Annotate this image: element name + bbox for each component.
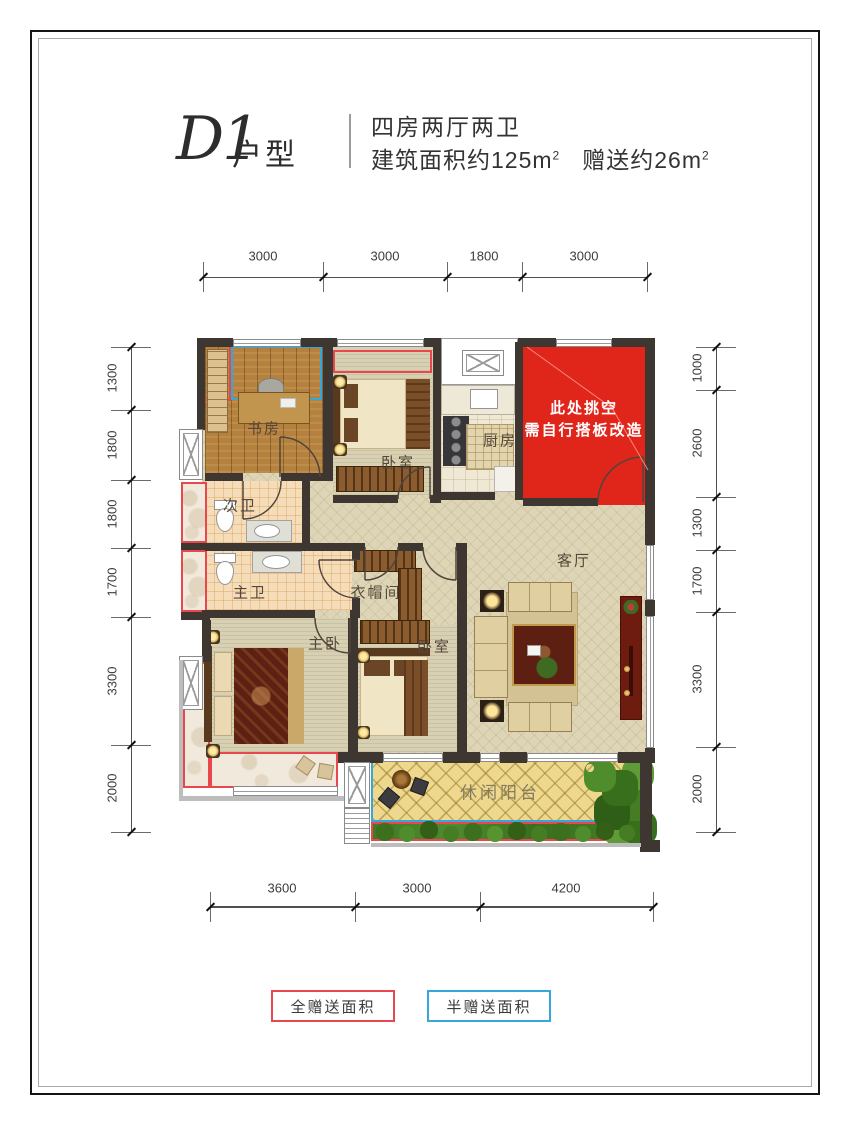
door-arc-void	[598, 457, 643, 502]
room-label-kitchen: 厨房	[483, 430, 517, 451]
room-label-master-bedroom: 主卧	[308, 633, 342, 654]
legend-full-gift: 全赠送面积	[271, 990, 395, 1022]
room-label-bath-master: 主卫	[233, 582, 267, 603]
room-label-balcony: 休闲阳台	[460, 779, 540, 804]
void-note-line1: 此处挑空	[523, 398, 645, 420]
door-arc-bedroom-corridor	[423, 547, 456, 580]
room-label-bedroom-bottom: 卧室	[417, 636, 451, 657]
void-note: 此处挑空 需自行搭板改造	[523, 398, 645, 442]
legend-half-gift: 半赠送面积	[427, 990, 551, 1022]
room-label-cloakroom: 衣帽间	[350, 582, 401, 603]
floorplan-page: D1 户型 四房两厅两卫 建筑面积约125m2赠送约26m2 3000 3000…	[0, 0, 850, 1125]
room-label-living: 客厅	[557, 550, 591, 571]
void-note-line2: 需自行搭板改造	[523, 420, 645, 442]
room-label-bedroom-top: 卧室	[381, 452, 415, 473]
room-label-study: 书房	[247, 418, 281, 439]
door-arcs-layer	[0, 0, 850, 1125]
door-arc-study	[280, 437, 320, 477]
legend-half-gift-label: 半赠送面积	[446, 996, 531, 1017]
room-label-bath-second: 次卫	[223, 495, 257, 516]
door-arc-cloakroom	[365, 547, 398, 580]
legend-full-gift-label: 全赠送面积	[290, 996, 375, 1017]
